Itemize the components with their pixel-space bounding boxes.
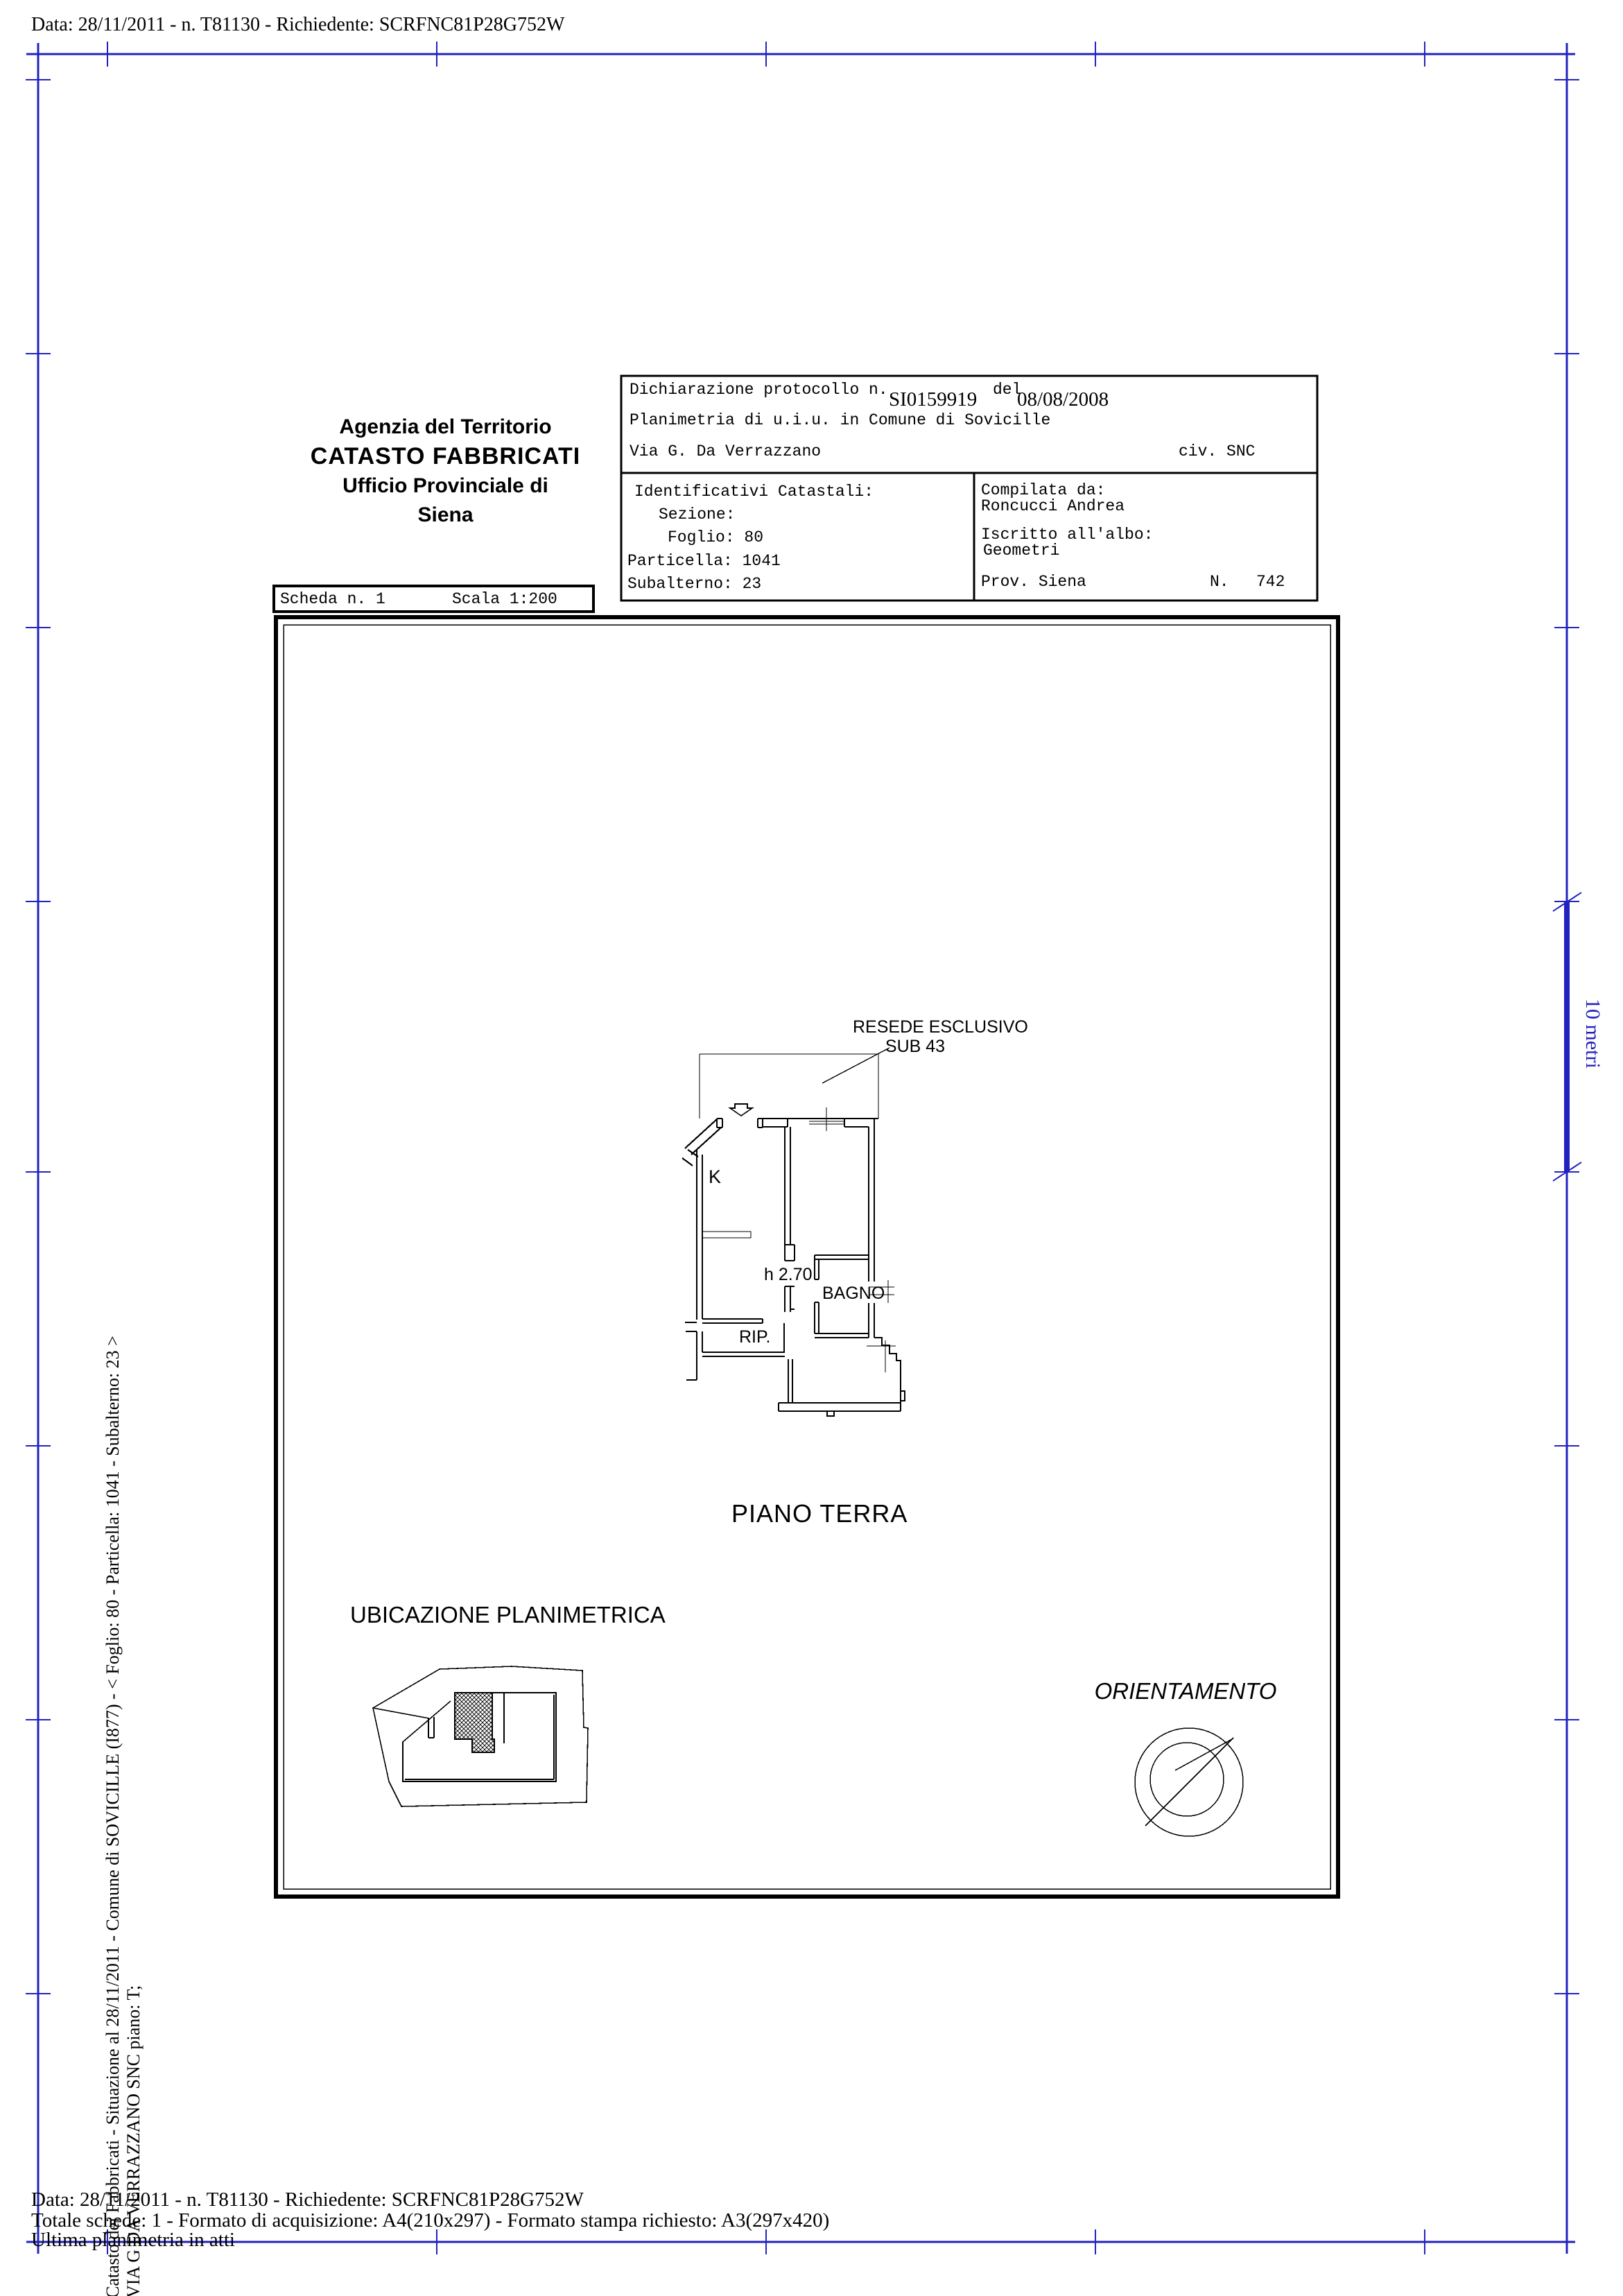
document-line-art [0,0,1623,2296]
cadastral-title: Identificativi Catastali: [634,484,874,500]
protocol-date: 08/08/2008 [1017,390,1109,410]
cadastral-subalterno: Subalterno: 23 [627,576,761,592]
planimetria-line: Planimetria di u.i.u. in Comune di Sovic… [630,413,1050,429]
sheet-scale: Scala 1:200 [452,592,557,607]
compiler-albo-label: Iscritto all'albo: [981,527,1153,543]
compiler-label: Compilata da: [981,483,1105,499]
compiler-albo: Geometri [983,543,1059,559]
cadastral-particella: Particella: 1041 [627,553,781,569]
plan-label-k: K [709,1168,721,1186]
header-office: Ufficio Provinciale di [277,476,614,497]
protocol-label: Dichiarazione protocollo n. [630,382,888,398]
plan-label-height: h 2.70 [764,1266,813,1284]
page-bottom-format-line: Totale schede: 1 - Formato di acquisizio… [31,2211,829,2231]
plan-label-bagno: BAGNO [822,1285,885,1302]
blue-plate-border [26,42,1579,2254]
cadastral-sezione: Sezione: [659,507,735,523]
page-bottom-request-line: Data: 28/11/2011 - n. T81130 - Richieden… [31,2190,584,2210]
scale-bar [1553,892,1581,1181]
page-bottom-status-line: Ultima planimetria in atti [31,2230,235,2250]
civic-number: civ. SNC [1179,444,1255,460]
plan-label-resede: RESEDE ESCLUSIVO [853,1019,1002,1036]
site-map [373,1666,588,1806]
entrance-arrow-icon [730,1104,752,1116]
cadastral-foglio: Foglio: 80 [668,530,763,546]
plan-label-sub: SUB 43 [853,1038,978,1055]
compiler-n-value: 742 [1256,574,1285,590]
header-agency: Agenzia del Territorio [277,417,614,438]
cadastral-document-page: Data: 28/11/2011 - n. T81130 - Richieden… [0,0,1623,2296]
compass-title: ORIENTAMENTO [1085,1680,1286,1702]
sheet-number: Scheda n. 1 [280,592,385,607]
street: Via G. Da Verrazzano [630,444,821,460]
compiler-prov: Prov. Siena [981,574,1086,590]
site-map-title: UBICAZIONE PLANIMETRICA [350,1603,662,1626]
header-registry: CATASTO FABBRICATI [277,444,614,468]
header-city: Siena [277,505,614,526]
scale-bar-label: 10 metri [1582,999,1603,1069]
page-top-request-line: Data: 28/11/2011 - n. T81130 - Richieden… [31,15,564,35]
plan-label-floor: PIANO TERRA [731,1501,905,1526]
compiler-name: Roncucci Andrea [981,499,1125,515]
compiler-n-label: N. [1210,574,1229,590]
protocol-number: SI0159919 [889,390,977,410]
compass-icon [1135,1728,1243,1836]
frames [274,376,1338,1897]
plan-label-rip: RIP. [739,1329,770,1346]
left-margin-cadastral-line: Catasto dei Fabbricati - Situazione al 2… [104,1336,122,2296]
